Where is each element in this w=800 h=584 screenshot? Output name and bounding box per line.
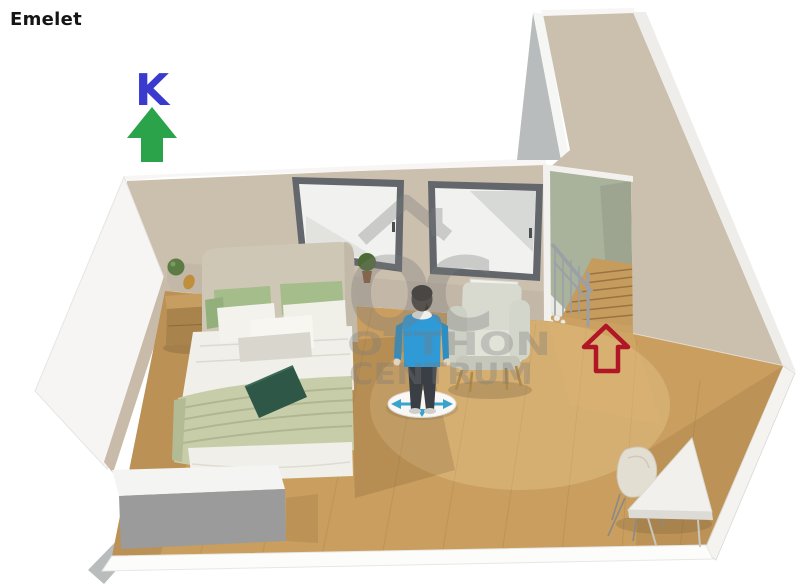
sideboard-front xyxy=(119,489,286,549)
window-left-handle xyxy=(392,222,395,232)
floorplan-screenshot: OC OTTHON CENTRUM Emelet K xyxy=(0,0,800,584)
window-right-handle xyxy=(529,228,532,238)
doorframe-left xyxy=(543,168,551,322)
page-title: Emelet xyxy=(10,9,82,30)
compass: K xyxy=(127,65,177,162)
sideboard-shadow xyxy=(286,494,318,543)
scene-canvas: OC OTTHON CENTRUM Emelet K xyxy=(0,0,800,584)
watermark-line2: CENTRUM xyxy=(349,357,533,391)
